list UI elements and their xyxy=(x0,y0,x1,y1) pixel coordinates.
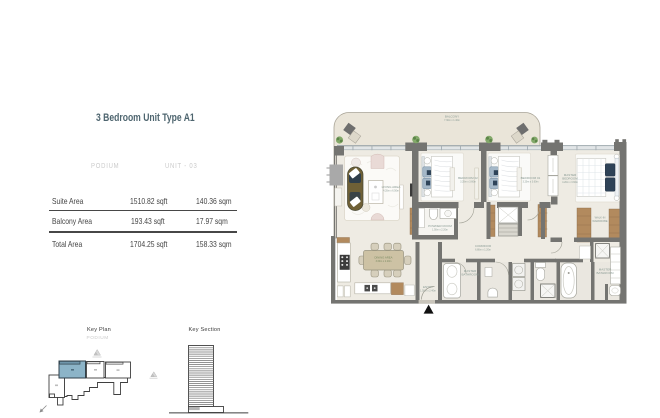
svg-text:POWDER ROOM: POWDER ROOM xyxy=(428,224,452,228)
svg-text:WARDROBE: WARDROBE xyxy=(592,219,607,223)
svg-text:BATHROOM: BATHROOM xyxy=(596,271,614,275)
svg-text:1.50m x 2.40m: 1.50m x 2.40m xyxy=(420,290,436,293)
svg-text:BEDROOM: BEDROOM xyxy=(562,177,578,181)
svg-text:4.20m x 6.50m: 4.20m x 6.50m xyxy=(383,190,399,193)
svg-text:6.80m x 1.20m: 6.80m x 1.20m xyxy=(475,249,491,252)
svg-text:CORRIDOR: CORRIDOR xyxy=(475,244,492,248)
svg-text:3.20m x 3.60m: 3.20m x 3.60m xyxy=(460,181,476,184)
svg-text:4.20m x 3.60m: 4.20m x 3.60m xyxy=(562,181,578,184)
svg-text:BEDROOM 01: BEDROOM 01 xyxy=(521,176,541,180)
svg-text:BEDROOM 02: BEDROOM 02 xyxy=(458,176,478,180)
svg-text:DINING AREA: DINING AREA xyxy=(374,256,392,260)
svg-text:7.30m x 1.40m: 7.30m x 1.40m xyxy=(444,119,460,122)
svg-text:3.20m x 3.60m: 3.20m x 3.60m xyxy=(523,181,539,184)
svg-text:LIVING AREA: LIVING AREA xyxy=(382,185,401,189)
svg-text:BALCONY: BALCONY xyxy=(445,115,459,119)
svg-text:1.50m x 2.20m: 1.50m x 2.20m xyxy=(432,229,448,232)
svg-text:BATHROOM: BATHROOM xyxy=(461,273,479,277)
svg-text:3.60m x 2.20m: 3.60m x 2.20m xyxy=(376,260,392,263)
